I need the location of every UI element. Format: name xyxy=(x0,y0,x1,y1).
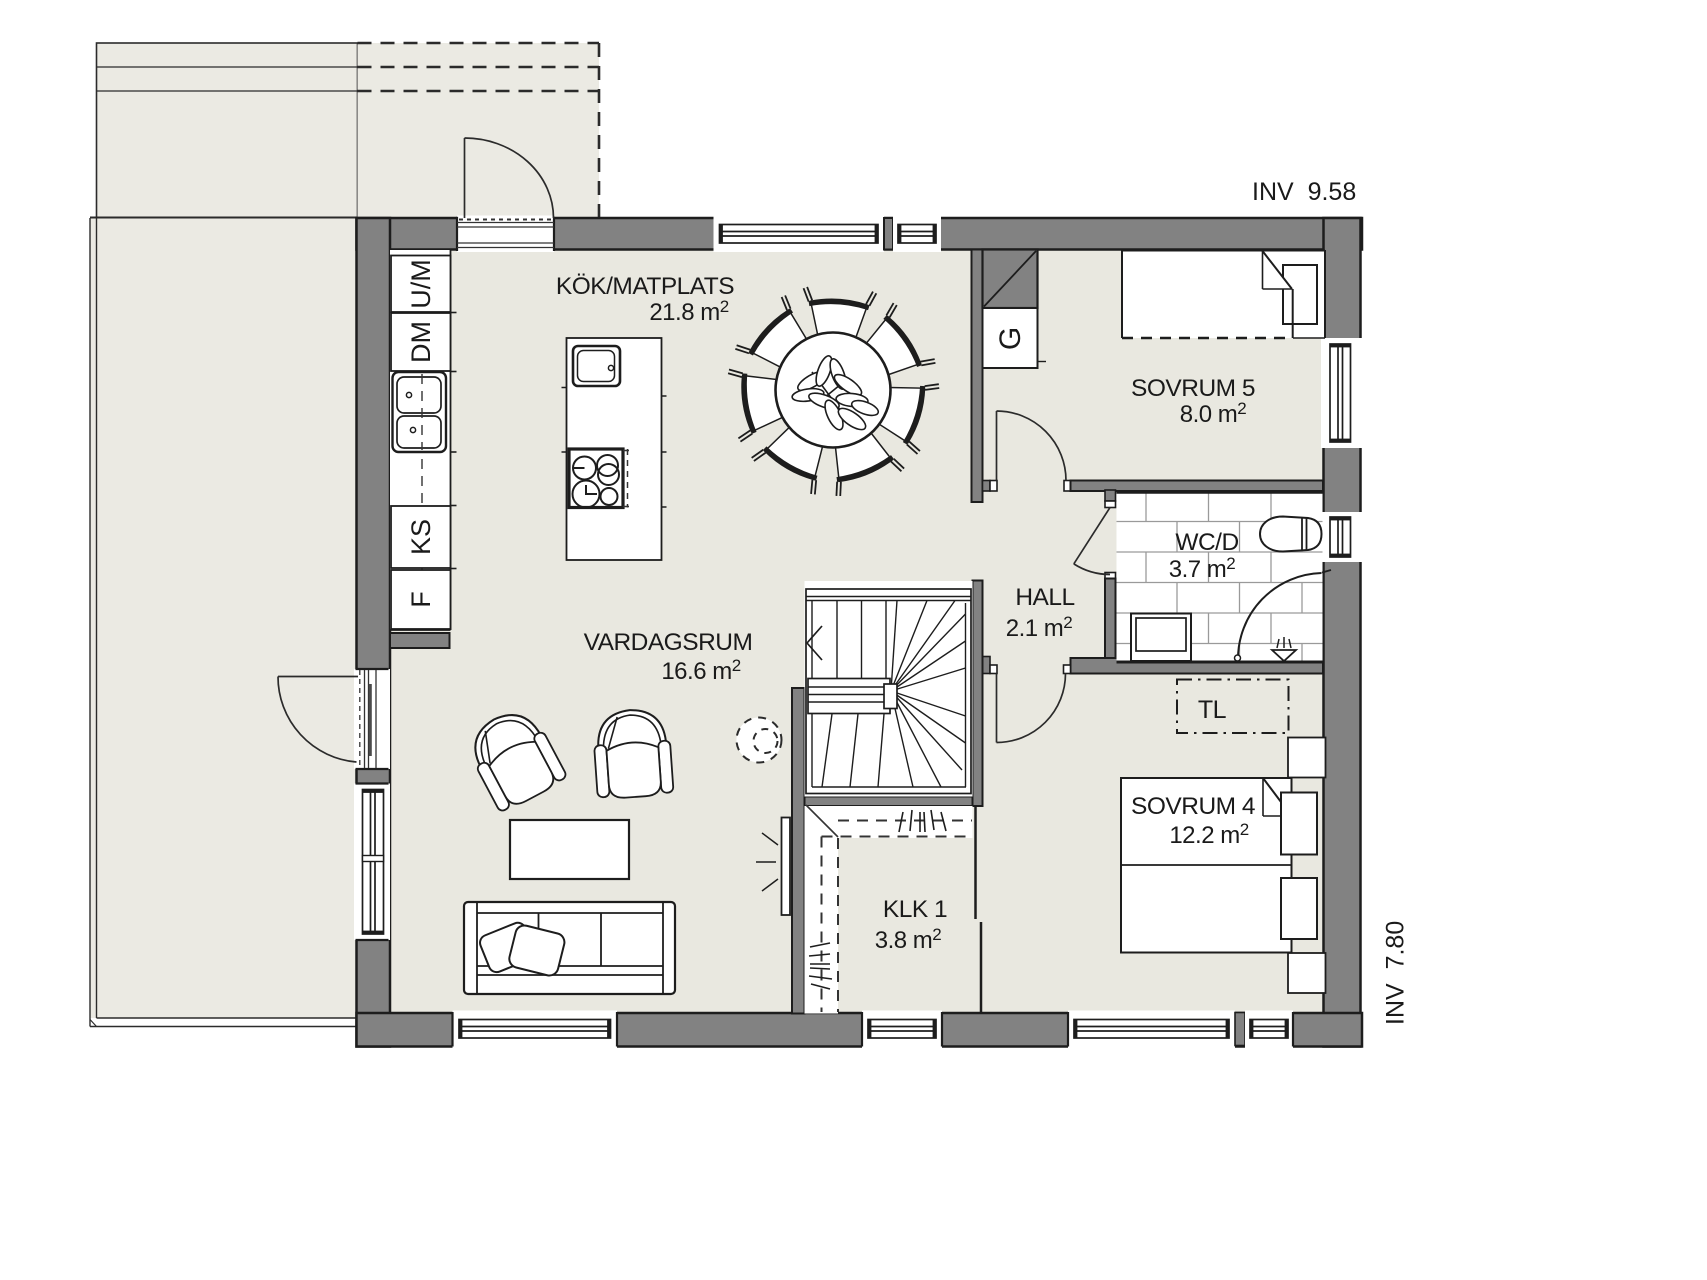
svg-text:KLK 1: KLK 1 xyxy=(883,896,947,923)
svg-text:TL: TL xyxy=(1198,696,1227,724)
svg-text:G: G xyxy=(994,327,1027,350)
svg-text:16.6 m2: 16.6 m2 xyxy=(661,656,740,685)
svg-text:SOVRUM 4: SOVRUM 4 xyxy=(1131,793,1255,820)
svg-text:2.1 m2: 2.1 m2 xyxy=(1006,613,1073,642)
svg-text:12.2 m2: 12.2 m2 xyxy=(1169,820,1248,849)
svg-text:KS: KS xyxy=(406,519,436,555)
svg-text:8.0 m2: 8.0 m2 xyxy=(1180,399,1247,428)
svg-text:3.7 m2: 3.7 m2 xyxy=(1169,554,1236,583)
svg-text:U/M: U/M xyxy=(406,259,436,309)
svg-text:F: F xyxy=(406,591,436,608)
svg-text:SOVRUM 5: SOVRUM 5 xyxy=(1131,375,1255,402)
svg-text:21.8 m2: 21.8 m2 xyxy=(649,297,728,326)
svg-text:INV 7.80: INV 7.80 xyxy=(1382,921,1410,1025)
svg-text:DM: DM xyxy=(406,321,436,363)
svg-text:INV 9.58: INV 9.58 xyxy=(1252,178,1356,206)
svg-text:WC/D: WC/D xyxy=(1175,529,1238,556)
svg-text:VARDAGSRUM: VARDAGSRUM xyxy=(584,629,753,656)
svg-text:KÖK/MATPLATS: KÖK/MATPLATS xyxy=(556,273,734,300)
svg-text:HALL: HALL xyxy=(1015,584,1074,611)
svg-text:3.8 m2: 3.8 m2 xyxy=(875,925,942,954)
